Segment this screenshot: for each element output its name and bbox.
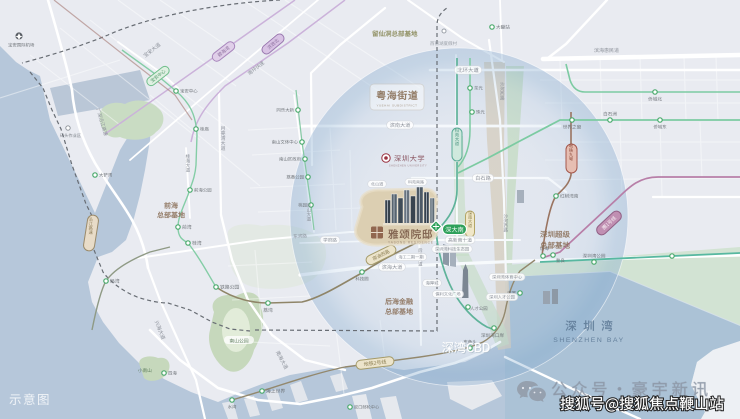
svg-text:SHENZHEN UNIVERSITY: SHENZHEN UNIVERSITY: [389, 164, 427, 168]
svg-text:SHENZHEN BAY: SHENZHEN BAY: [553, 337, 625, 344]
svg-text:YASONG RESIDENCE: YASONG RESIDENCE: [388, 241, 434, 245]
svg-text:YUEHAI SUBDISTRICT: YUEHAI SUBDISTRICT: [376, 104, 417, 108]
